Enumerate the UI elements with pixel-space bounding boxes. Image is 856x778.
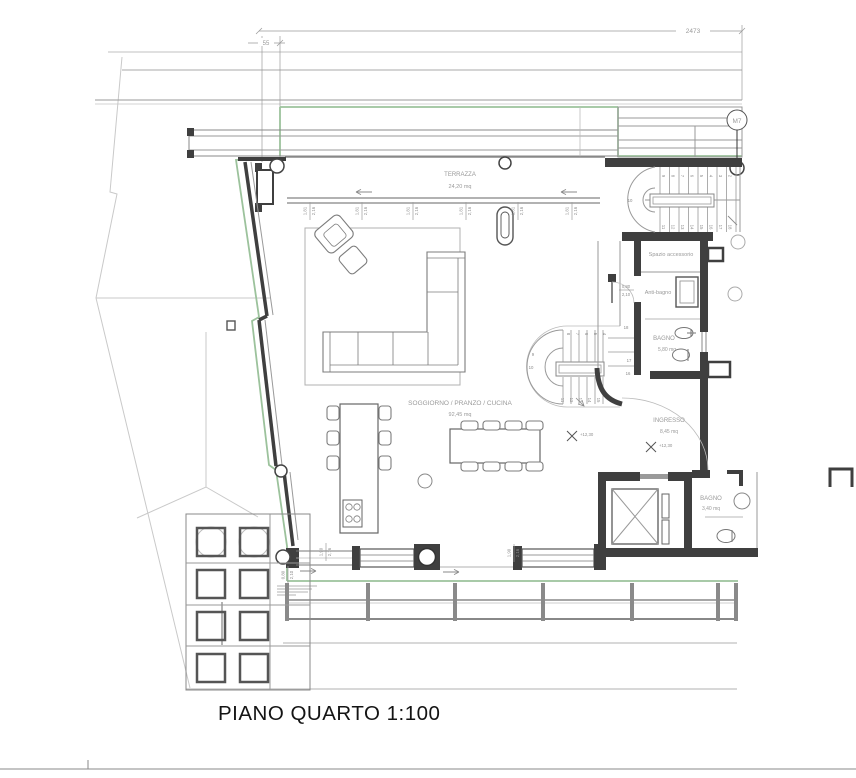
level-marker-landing: +12,30 (567, 431, 594, 441)
roof-edge-lines (95, 52, 742, 104)
wall-vent (227, 321, 235, 330)
bagno2-name: BAGNO (700, 496, 722, 502)
window-dim-height: 2,16 (467, 206, 472, 215)
stair-step-number: 17 (718, 225, 723, 230)
elevator (598, 472, 692, 557)
m7-label: M7 (732, 118, 741, 125)
window-dim-width: 1,81 (565, 206, 570, 215)
internal-stair-numbers-left: 910 (529, 352, 535, 370)
stair-step-number: 11 (661, 225, 666, 230)
antibagno-room: Anti-bagno 0,80 2,10 (608, 274, 700, 319)
internal-stair-numbers-right: 181716 (624, 325, 632, 376)
kitchen-island (340, 404, 378, 533)
level-ingresso-value: +12,30 (659, 443, 673, 448)
stair-step-number: 18 (624, 325, 629, 330)
stair-step-number: 8 (671, 175, 676, 178)
bagno1-name: BAGNO (653, 336, 675, 342)
stair-step-number: 8 (566, 333, 571, 336)
floor-fixture (418, 474, 432, 488)
spazio-room: Spazio accessorio (641, 252, 700, 272)
window-dim-height: 2,16 (515, 548, 520, 557)
bagno1-room: BAGNO 5,80 mq (653, 328, 696, 362)
toilet-fixture (673, 349, 690, 361)
window-dim-height: 2,16 (414, 206, 419, 215)
stair-step-number: 16 (626, 371, 631, 376)
window-dim-height: 2,16 (573, 206, 578, 215)
terrazza-name: TERRAZZA (444, 172, 476, 178)
window-dim-height: 2,16 (363, 206, 368, 215)
stair-step-number: 14 (690, 225, 695, 230)
green-envelope (236, 107, 742, 581)
ingresso-area: 8,45 mq (660, 429, 678, 435)
internal-stair-numbers-top: 87654 (566, 333, 607, 336)
stair-step-number: 15 (596, 398, 601, 403)
window-dim-width: 1,81 (406, 206, 411, 215)
window-dim-width: 1,81 (459, 206, 464, 215)
soggiorno-label: SOGGIORNO / PRANZO / CUCINA 92,45 mq (408, 400, 512, 418)
soggiorno-area: 92,45 mq (449, 412, 472, 418)
bottom-wall-windows (276, 544, 606, 575)
main-stair-numbers-top: 98765432 (661, 175, 733, 178)
level-landing-value: +12,30 (580, 432, 594, 437)
window-dim-height: 2,10 (289, 570, 294, 579)
sofa (323, 252, 465, 372)
window-dim-width: 1,81 (355, 206, 360, 215)
stair-step-number: 10 (529, 365, 534, 370)
window-dim-height: 2,16 (519, 206, 524, 215)
toilet-fixture (717, 530, 735, 543)
stair-step-number: 11 (560, 398, 565, 403)
offset-dim: 55 (263, 41, 270, 47)
main-stair-curve-number: 10 (628, 198, 633, 203)
stair-step-number: 18 (728, 225, 733, 230)
stair-step-number: 6 (690, 175, 695, 178)
stair-step-number: 13 (680, 225, 685, 230)
soggiorno-name: SOGGIORNO / PRANZO / CUCINA (408, 400, 512, 407)
stair-step-number: 17 (627, 358, 632, 363)
drawing-title: PIANO QUARTO 1:100 (218, 702, 440, 725)
right-wall-stub (830, 469, 852, 487)
overall-width-dim: 2473 (686, 28, 701, 35)
level-marker-ingresso: +12,30 (646, 442, 673, 452)
m7-marker: M7 (727, 110, 747, 161)
spazio-name: Spazio accessorio (649, 252, 694, 258)
sheet-border (0, 760, 856, 769)
internal-stair (527, 326, 637, 407)
main-stair-numbers-bottom: 1112131415161718 (661, 225, 733, 230)
ottoman (338, 245, 369, 276)
dining-table (450, 429, 540, 463)
stair-step-number: 7 (680, 175, 685, 178)
ingresso-room: INGRESSO 8,45 mq (597, 368, 708, 470)
stair-step-number: 13 (578, 398, 583, 403)
terrace-window-wall (287, 198, 600, 203)
stair-step-number: 14 (587, 398, 592, 403)
window-dim-width: 1,90 (507, 548, 512, 557)
floor-plan-sheet: 2473 55 M7 (0, 0, 856, 778)
stair-step-number: 2 (728, 175, 733, 178)
angled-west-wall (227, 162, 298, 546)
antibagno-name: Anti-bagno (645, 290, 672, 296)
ingresso-name: INGRESSO (653, 418, 685, 424)
sink-fixture (734, 493, 750, 509)
bagno2-area: 3,40 mq (702, 506, 720, 512)
micro-annotation-lines (277, 586, 317, 595)
railing-posts (285, 583, 738, 621)
stair-step-number: 3 (718, 175, 723, 178)
stair-step-number: 5 (699, 175, 704, 178)
dimension-overall: 2473 (256, 25, 745, 162)
window-dimension-labels-top: 1,812,161,812,161,812,161,812,161,812,16… (303, 202, 579, 220)
window-dim-width: 0,80 (281, 570, 286, 579)
stair-step-number: 12 (671, 225, 676, 230)
door-dimension: 0,80 2,10 (619, 284, 634, 297)
terrazza-area: 24,20 mq (449, 184, 472, 190)
door-dim-h: 2,10 (622, 292, 631, 297)
stair-step-number: 6 (584, 333, 589, 336)
stair-step-number: 16 (709, 225, 714, 230)
stair-step-number: 15 (699, 225, 704, 230)
stair-step-number: 5 (593, 333, 598, 336)
window-dim-width: 1,81 (303, 206, 308, 215)
site-boundary-lines (96, 57, 270, 688)
door-dim-w: 0,80 (622, 284, 631, 289)
stair-step-number: 9 (532, 352, 535, 357)
floor-plan-drawing: 2473 55 M7 (0, 0, 856, 778)
sink-fixture (675, 328, 696, 339)
window-dim-height: 2,16 (327, 547, 332, 556)
stair-step-number: 4 (709, 175, 714, 178)
terrace-planter-band (187, 128, 618, 158)
stair-step-number: 9 (661, 175, 666, 178)
level-markers: +12,30 +12,30 (567, 431, 673, 452)
window-dim-width: 1,90 (319, 547, 324, 556)
window-dim-height: 2,16 (311, 206, 316, 215)
window-dim-width: 1,81 (511, 206, 516, 215)
bagno2-room: BAGNO 3,40 mq (692, 470, 758, 557)
stair-step-number: 12 (569, 398, 574, 403)
dimension-offset: 55 (248, 38, 285, 47)
